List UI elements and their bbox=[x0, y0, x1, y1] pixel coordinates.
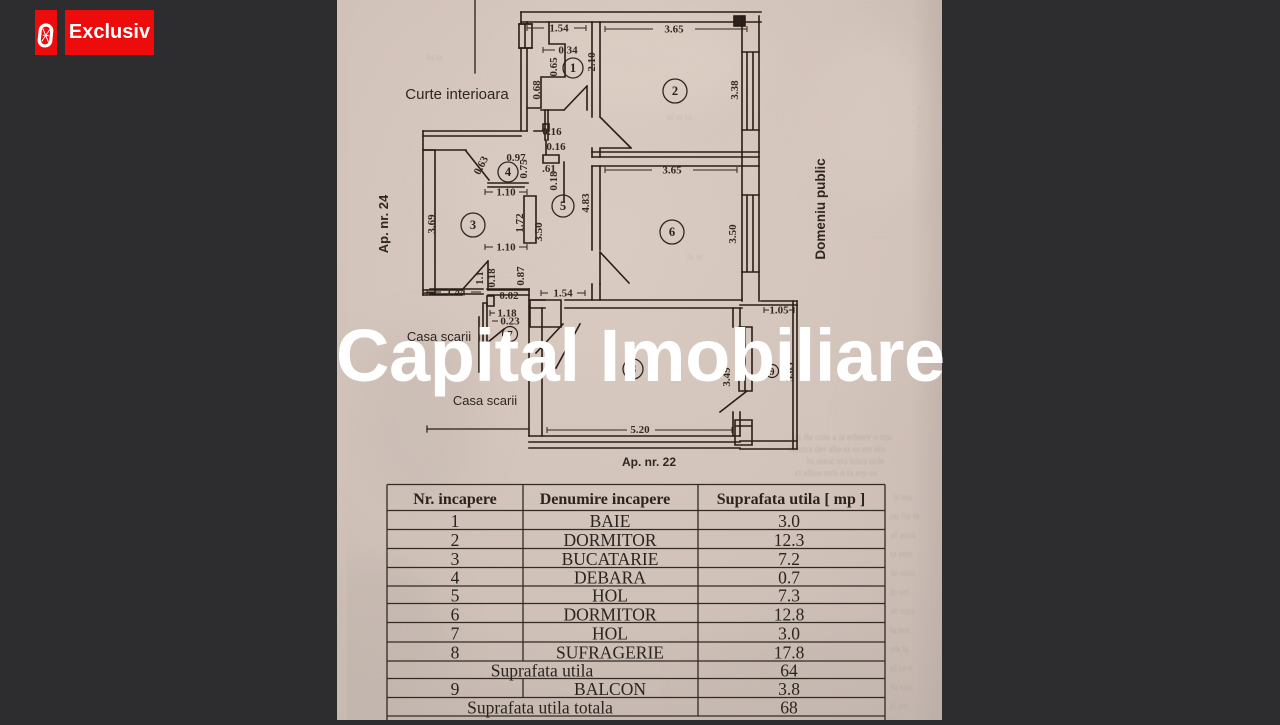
svg-text:9: 9 bbox=[451, 679, 460, 699]
svg-text:lu et: lu et bbox=[687, 252, 703, 262]
svg-text:1: 1 bbox=[451, 511, 460, 531]
svg-text:12.8: 12.8 bbox=[774, 605, 805, 625]
svg-text:3: 3 bbox=[470, 218, 476, 232]
svg-text:0.7: 0.7 bbox=[778, 568, 800, 588]
svg-text:iz eta: iz eta bbox=[893, 492, 912, 502]
svg-text:iulutra der alie ta es ert ein: iulutra der alie ta es ert ein bbox=[789, 444, 885, 454]
svg-text:4.83: 4.83 bbox=[580, 193, 592, 213]
svg-text:0.65: 0.65 bbox=[548, 57, 560, 77]
svg-text:nilcu ta ire: nilcu ta ire bbox=[914, 105, 925, 160]
svg-text:8: 8 bbox=[451, 643, 460, 663]
svg-text:el nuta: el nuta bbox=[891, 606, 915, 616]
svg-text:in ert: in ert bbox=[890, 587, 909, 597]
svg-text:1: 1 bbox=[570, 61, 576, 75]
svg-text:4: 4 bbox=[505, 165, 512, 179]
svg-text:Suprafata utila: Suprafata utila bbox=[491, 661, 594, 681]
svg-text:64: 64 bbox=[780, 661, 798, 681]
svg-text:5: 5 bbox=[451, 586, 460, 606]
svg-text:5: 5 bbox=[560, 199, 566, 213]
svg-text:1.72: 1.72 bbox=[514, 213, 526, 233]
svg-text:nu rta ik: nu rta ik bbox=[890, 511, 920, 521]
svg-text:3.50: 3.50 bbox=[727, 224, 739, 244]
svg-text:lu ta: lu ta bbox=[427, 52, 443, 62]
svg-text:DEBARA: DEBARA bbox=[574, 568, 646, 588]
svg-text:0.02: 0.02 bbox=[499, 290, 519, 302]
svg-text:Suprafata utila totala: Suprafata utila totala bbox=[467, 698, 613, 718]
svg-text:0.16: 0.16 bbox=[546, 141, 566, 153]
svg-text:1.10: 1.10 bbox=[496, 242, 516, 254]
svg-text:0.87: 0.87 bbox=[515, 266, 527, 286]
svg-text:DORMITOR: DORMITOR bbox=[563, 530, 656, 550]
svg-text:7.2: 7.2 bbox=[778, 549, 800, 569]
svg-text:5.20: 5.20 bbox=[630, 424, 650, 436]
svg-text:3.65: 3.65 bbox=[664, 24, 684, 36]
svg-text:6: 6 bbox=[451, 605, 460, 625]
svg-text:3.0: 3.0 bbox=[778, 624, 800, 644]
svg-text:Curte interioara: Curte interioara bbox=[405, 86, 509, 103]
svg-text:0.75: 0.75 bbox=[518, 159, 530, 179]
svg-text:el ta n: el ta n bbox=[890, 663, 912, 673]
svg-text:0.68: 0.68 bbox=[531, 80, 543, 100]
svg-text:3: 3 bbox=[451, 549, 460, 569]
svg-text:ta ern: ta ern bbox=[891, 682, 912, 692]
svg-text:le unta: le unta bbox=[891, 568, 915, 578]
svg-text:2: 2 bbox=[451, 530, 460, 550]
svg-text:DORMITOR: DORMITOR bbox=[563, 605, 656, 625]
svg-text:BAIE: BAIE bbox=[590, 511, 631, 531]
svg-text:1.1: 1.1 bbox=[474, 271, 486, 285]
svg-text:1.44: 1.44 bbox=[446, 287, 466, 299]
svg-text:0.18: 0.18 bbox=[486, 268, 498, 288]
svg-text:Nr. incapere: Nr. incapere bbox=[413, 491, 497, 508]
svg-text:12.3: 12.3 bbox=[774, 530, 805, 550]
svg-text:nu ta: nu ta bbox=[891, 644, 909, 654]
svg-text:0.16: 0.16 bbox=[542, 126, 562, 138]
svg-text:68: 68 bbox=[780, 698, 798, 718]
svg-text:el un: el un bbox=[890, 701, 908, 711]
svg-text:Suprafata utila [ mp ]: Suprafata utila [ mp ] bbox=[717, 491, 865, 508]
svg-text:HOL: HOL bbox=[592, 624, 628, 644]
svg-text:lu otesc eta iclea nide: lu otesc eta iclea nide bbox=[807, 456, 884, 466]
svg-text:el anid: el anid bbox=[891, 530, 916, 540]
svg-text:Ap. nr. 24: Ap. nr. 24 bbox=[376, 194, 391, 253]
svg-text:SUFRAGERIE: SUFRAGERIE bbox=[556, 643, 664, 663]
svg-text:7: 7 bbox=[451, 624, 460, 644]
svg-text:BALCON: BALCON bbox=[574, 679, 646, 699]
svg-text:1.54: 1.54 bbox=[553, 288, 573, 300]
svg-text:0.18: 0.18 bbox=[548, 171, 560, 191]
svg-text:1.10: 1.10 bbox=[496, 187, 516, 199]
svg-text:3.65: 3.65 bbox=[662, 165, 682, 177]
svg-text:ta ern: ta ern bbox=[890, 625, 911, 635]
svg-text:1.54: 1.54 bbox=[549, 23, 569, 35]
svg-text:0.34: 0.34 bbox=[558, 45, 578, 57]
svg-text:6: 6 bbox=[669, 225, 675, 239]
svg-text:Ap. nr. 22: Ap. nr. 22 bbox=[622, 455, 676, 469]
svg-text:3.0: 3.0 bbox=[778, 511, 800, 531]
svg-text:Domeniu public: Domeniu public bbox=[813, 158, 828, 260]
svg-text:3.38: 3.38 bbox=[729, 80, 741, 100]
svg-text:Denumire incapere: Denumire incapere bbox=[540, 491, 671, 508]
svg-text:2.10: 2.10 bbox=[586, 52, 598, 72]
svg-text:ni et ta: ni et ta bbox=[667, 112, 692, 122]
svg-text:ct elinu tsrti o ta erp es: ct elinu tsrti o ta erp es bbox=[795, 468, 877, 478]
svg-text:2: 2 bbox=[672, 84, 678, 98]
svg-text:3.8: 3.8 bbox=[778, 679, 800, 699]
svg-text:3.50: 3.50 bbox=[533, 222, 545, 242]
svg-text:un ilu cote a at ederev o tnu: un ilu cote a at ederev o tnu bbox=[792, 432, 892, 442]
svg-text:ta ertn: ta ertn bbox=[890, 549, 913, 559]
svg-text:7.3: 7.3 bbox=[778, 586, 800, 606]
svg-text:HOL: HOL bbox=[592, 586, 628, 606]
svg-text:17.8: 17.8 bbox=[774, 643, 805, 663]
svg-text:3.69: 3.69 bbox=[426, 214, 438, 234]
svg-text:4: 4 bbox=[451, 568, 460, 588]
svg-text:BUCATARIE: BUCATARIE bbox=[562, 549, 659, 569]
